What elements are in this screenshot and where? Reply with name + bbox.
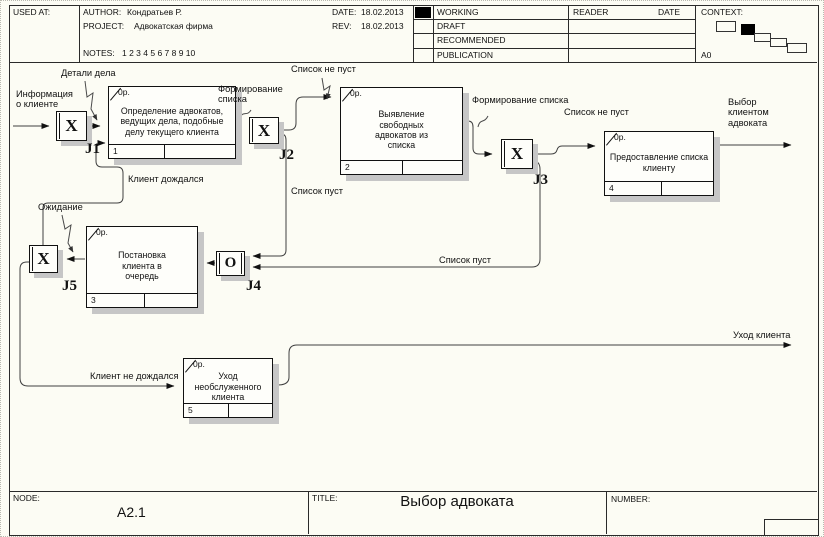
node-label: NODE: <box>13 493 40 503</box>
diagram-title: Выбор адвоката <box>308 493 606 510</box>
number-label: NUMBER: <box>611 494 650 504</box>
label-list-forming-1: Формирование списка <box>218 84 283 105</box>
label-list-not-empty-2: Список не пуст <box>564 107 629 117</box>
context-node-value: A0 <box>701 50 711 60</box>
label-client-choice: Выбор клиентом адвоката <box>728 97 769 128</box>
junction-bar <box>504 141 505 167</box>
status-publication: PUBLICATION <box>437 50 493 60</box>
junction-j1-xor[interactable]: X <box>56 111 87 141</box>
junction-bar <box>219 253 220 274</box>
cost-label: 0р. <box>193 359 205 369</box>
junction-bar <box>252 119 253 142</box>
uob-box-1[interactable]: 0р. Определение адвокатов, ведущих дела,… <box>108 86 236 159</box>
label-list-empty-2: Список пуст <box>439 255 491 265</box>
strip-divider <box>661 182 662 195</box>
junction-label-j3: J3 <box>533 172 548 189</box>
strip-divider <box>164 145 165 158</box>
label-client-waited: Клиент дождался <box>128 174 204 184</box>
label-client-info: Информация о клиенте <box>16 89 73 110</box>
uob-box-2[interactable]: 0р. Выявление свободных адвокатов из спи… <box>340 87 463 175</box>
cost-label: 0р. <box>96 227 108 237</box>
footer-top-line <box>9 491 817 492</box>
author-value: Кондратьев Р. <box>127 7 182 17</box>
node-value: A2.1 <box>117 504 146 520</box>
label-client-leave: Уход клиента <box>733 330 790 340</box>
header-bottom-line <box>9 62 817 63</box>
uob-box-3[interactable]: 0р. Постановка клиента в очередь 3 <box>86 226 198 308</box>
status-row-line <box>413 19 695 20</box>
uob-number: 5 <box>188 405 193 415</box>
junction-letter: O <box>225 255 237 272</box>
uob-text: Предоставление списка клиенту <box>606 152 712 173</box>
uob-box-4[interactable]: 0р. Предоставление списка клиенту 4 <box>604 131 714 196</box>
uob-text: Постановка клиента в очередь <box>110 250 174 281</box>
junction-letter: X <box>511 144 523 164</box>
junction-bar <box>241 253 242 274</box>
uob-number: 4 <box>609 183 614 193</box>
cost-label: 0р. <box>614 132 626 142</box>
junction-j5-xor[interactable]: X <box>29 245 58 273</box>
context-thumb-current-node <box>741 24 755 35</box>
uob-text: Уход необслуженного клиента <box>186 371 270 402</box>
junction-label-j5: J5 <box>62 278 77 295</box>
cost-label: 0р. <box>350 88 362 98</box>
junction-bar <box>59 113 60 139</box>
label-list-not-empty-1: Список не пуст <box>291 64 356 74</box>
junction-letter: X <box>37 249 49 269</box>
header-divider <box>79 5 80 62</box>
status-working: WORKING <box>437 7 479 17</box>
uob-text: Определение адвокатов, ведущих дела, под… <box>115 106 229 137</box>
context-thumb-node <box>770 38 787 47</box>
header-divider <box>695 5 696 62</box>
label-list-empty-1: Список пуст <box>291 186 343 196</box>
reader-label: READER <box>573 7 608 17</box>
uob-number: 3 <box>91 295 96 305</box>
junction-j2-xor[interactable]: X <box>249 117 279 144</box>
working-status-mark <box>415 7 431 18</box>
rev-value: 18.02.2013 <box>361 21 404 31</box>
number-corner-box <box>764 519 818 535</box>
context-label: CONTEXT: <box>701 7 743 17</box>
used-at-label: USED AT: <box>13 7 50 17</box>
date-value: 18.02.2013 <box>361 7 404 17</box>
status-draft: DRAFT <box>437 21 465 31</box>
footer-divider <box>606 491 607 534</box>
junction-label-j1: J1 <box>85 141 100 158</box>
uob-number-strip: 2 <box>341 160 462 174</box>
junction-letter: X <box>65 116 77 136</box>
notes-value: 1 2 3 4 5 6 7 8 9 10 <box>122 48 195 58</box>
junction-label-j2: J2 <box>279 147 294 164</box>
project-label: PROJECT: <box>83 21 124 31</box>
junction-j4-or[interactable]: O <box>216 251 245 276</box>
uob-number-strip: 3 <box>87 293 197 307</box>
junction-j3-xor[interactable]: X <box>501 139 533 169</box>
project-value: Адвокатская фирма <box>134 21 213 31</box>
uob-text: Выявление свободных адвокатов из списка <box>367 109 437 151</box>
status-recommended: RECOMMENDED <box>437 35 505 45</box>
uob-number-strip: 4 <box>605 181 713 195</box>
notes-label: NOTES: <box>83 48 115 58</box>
cost-label: 0р. <box>118 87 130 97</box>
uob-number-strip: 5 <box>184 403 272 417</box>
strip-divider <box>402 161 403 174</box>
junction-letter: X <box>258 121 270 141</box>
idef3-diagram-page: USED AT: AUTHOR: Кондратьев Р. PROJECT: … <box>0 0 824 537</box>
strip-divider <box>144 294 145 307</box>
junction-label-j4: J4 <box>246 278 261 295</box>
uob-box-5[interactable]: 0р. Уход необслуженного клиента 5 <box>183 358 273 418</box>
label-waiting: Ожидание <box>38 202 83 212</box>
context-thumb-node <box>787 43 807 53</box>
rev-label: REV: <box>332 21 352 31</box>
label-client-not-waited: Клиент не дождался <box>90 371 178 381</box>
context-thumb-node <box>754 33 771 42</box>
label-list-forming-2: Формирование списка <box>472 95 568 105</box>
uob-number: 2 <box>345 162 350 172</box>
uob-number: 1 <box>113 146 118 156</box>
author-label: AUTHOR: <box>83 7 121 17</box>
status-row-line <box>413 48 695 49</box>
label-case-details: Детали дела <box>61 68 116 78</box>
status-row-line <box>413 33 695 34</box>
date-label: DATE: <box>332 7 356 17</box>
junction-bar <box>32 247 33 271</box>
reader-date-label: DATE <box>658 7 680 17</box>
strip-divider <box>228 404 229 417</box>
context-thumb-node <box>716 21 736 32</box>
uob-number-strip: 1 <box>109 144 235 158</box>
